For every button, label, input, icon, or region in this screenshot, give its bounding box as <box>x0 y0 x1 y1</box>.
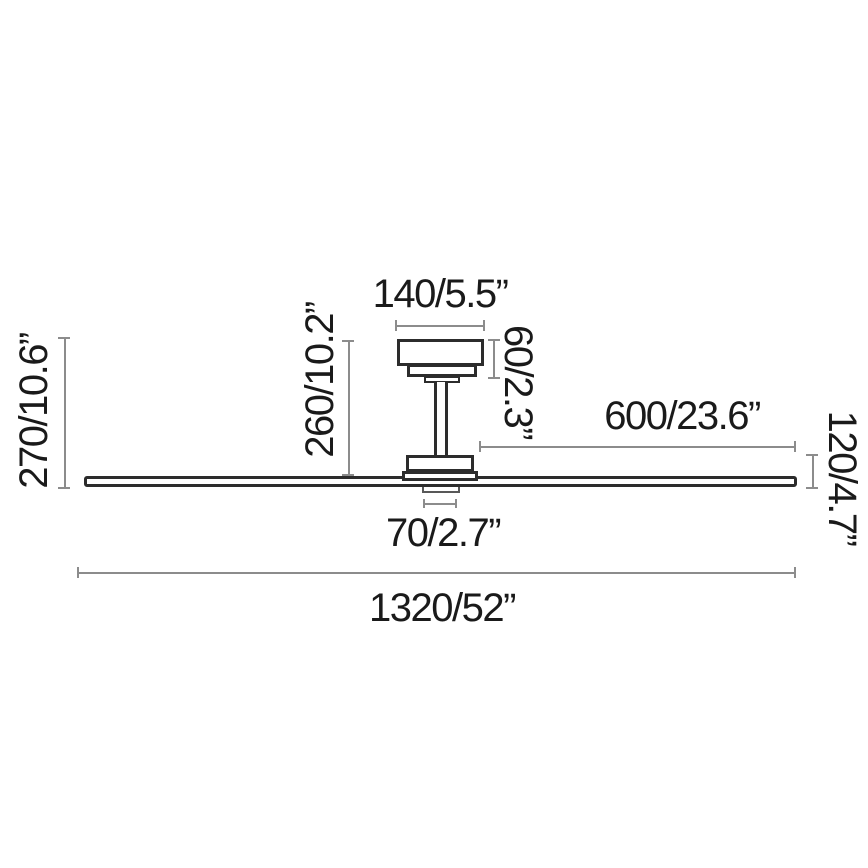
dim-tick <box>342 474 354 476</box>
dim-line-canopy-height <box>493 340 495 378</box>
dim-line-motor-height <box>812 455 814 488</box>
dim-tick <box>455 499 457 508</box>
dim-tick <box>77 567 79 578</box>
dim-tick <box>342 340 354 342</box>
canopy-body <box>397 339 484 366</box>
motor-housing-lower <box>402 471 478 481</box>
fan-dimension-diagram: 140/5.5” 60/2.3” 260/10.2” 270/10.6” 600… <box>0 0 868 868</box>
dim-label-total-height: 270/10.6” <box>12 291 56 531</box>
dim-line-light-diameter <box>424 503 456 505</box>
dim-label-blade-length: 600/23.6” <box>532 394 832 438</box>
dim-line-drop-height <box>348 341 350 475</box>
dim-tick <box>58 487 70 489</box>
downrod <box>434 382 448 456</box>
dim-tick <box>483 320 485 331</box>
dim-label-total-diameter: 1320/52” <box>292 586 592 630</box>
dim-label-light-diameter: 70/2.7” <box>293 511 593 555</box>
dim-label-canopy-height: 60/2.3” <box>496 262 540 502</box>
dim-tick <box>423 499 425 508</box>
dim-line-canopy-width <box>396 325 484 327</box>
dim-line-total-diameter <box>78 572 795 574</box>
dim-label-drop-height: 260/10.2” <box>298 260 342 500</box>
dim-tick <box>806 487 818 489</box>
dim-tick <box>794 567 796 578</box>
dim-tick <box>479 441 481 452</box>
motor-housing-upper <box>406 455 474 472</box>
dim-tick <box>58 337 70 339</box>
dim-label-motor-height: 120/4.7” <box>820 358 864 598</box>
dim-tick <box>806 454 818 456</box>
dim-tick <box>395 320 397 331</box>
dim-tick <box>794 441 796 452</box>
dim-line-total-height <box>64 338 66 488</box>
